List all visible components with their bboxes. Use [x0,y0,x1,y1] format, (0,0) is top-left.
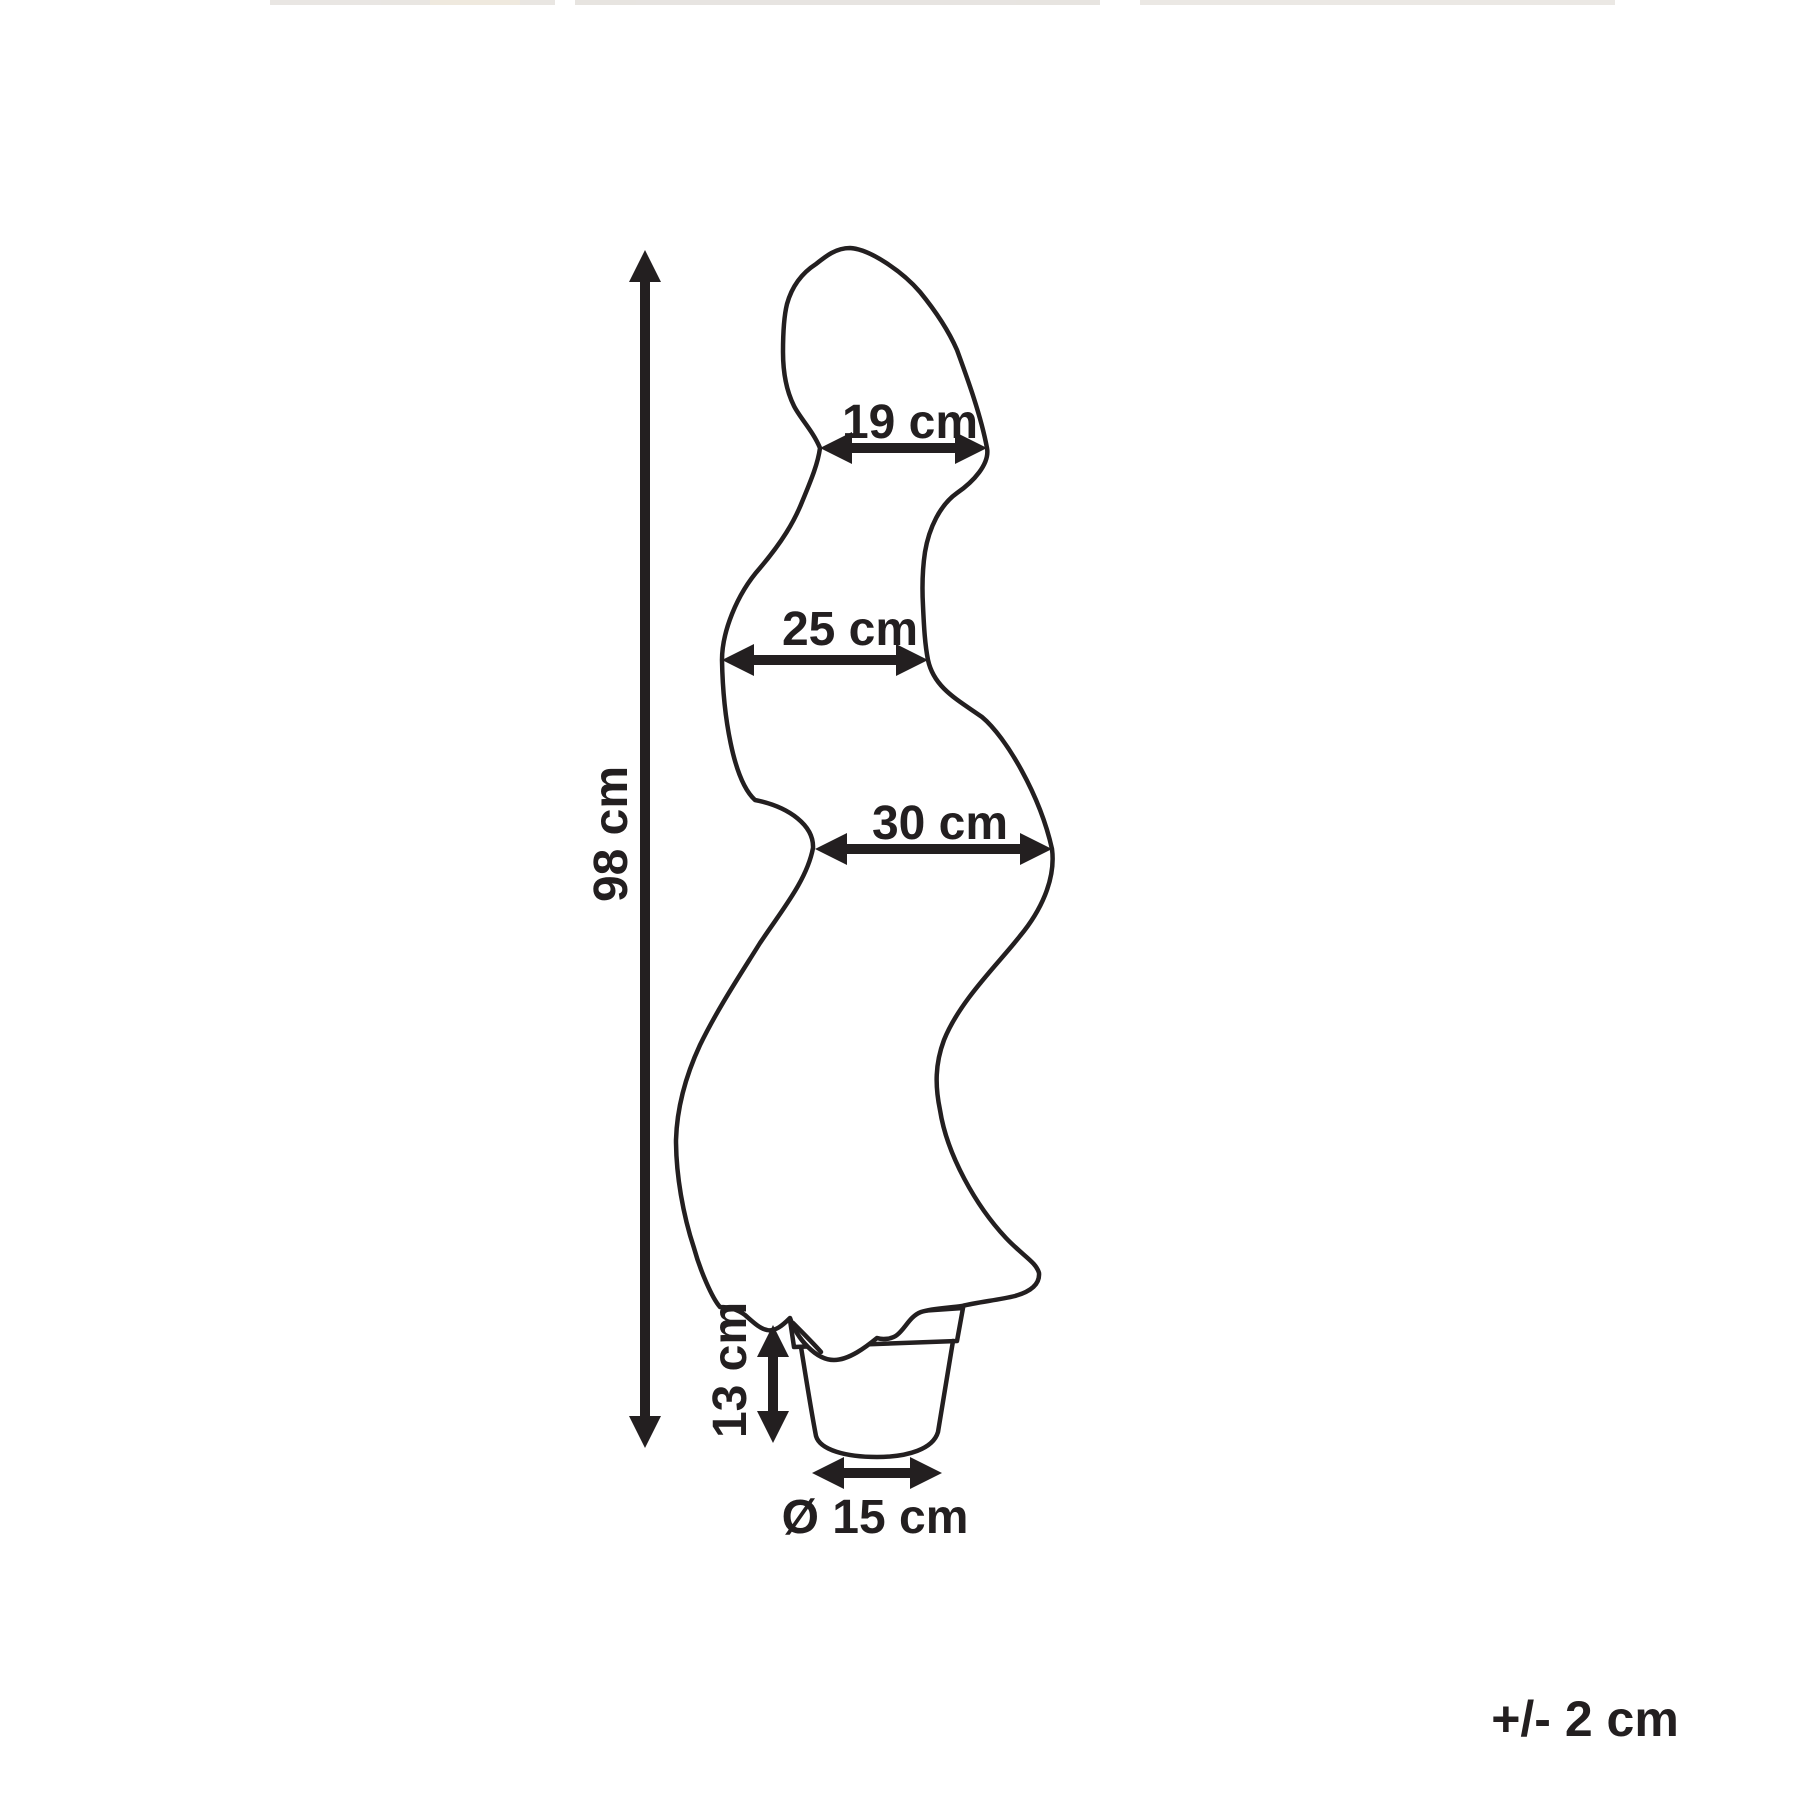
tolerance-note: +/- 2 cm [1491,1691,1679,1747]
arrowhead-right [910,1457,942,1489]
pot-diameter-label: Ø 15 cm [782,1491,969,1544]
diagram-svg: 19 cm 25 cm 30 cm 98 cm 13 cm Ø 15 cm +/… [0,0,1800,1800]
arrowhead-up [629,250,661,282]
bottom-width-label: 30 cm [872,797,1008,850]
pot-height-arrow [757,1325,789,1443]
arrowhead-down [757,1411,789,1443]
arrowhead-left [812,1457,844,1489]
dimension-diagram: 19 cm 25 cm 30 cm 98 cm 13 cm Ø 15 cm +/… [0,0,1800,1800]
total-height-label: 98 cm [585,766,638,902]
arrowhead-down [629,1416,661,1448]
top-edge-artifact [270,0,1615,5]
pot-diameter-arrow [812,1457,942,1489]
top-width-label: 19 cm [842,396,978,449]
pot-height-label: 13 cm [704,1302,757,1438]
middle-width-label: 25 cm [782,603,918,656]
